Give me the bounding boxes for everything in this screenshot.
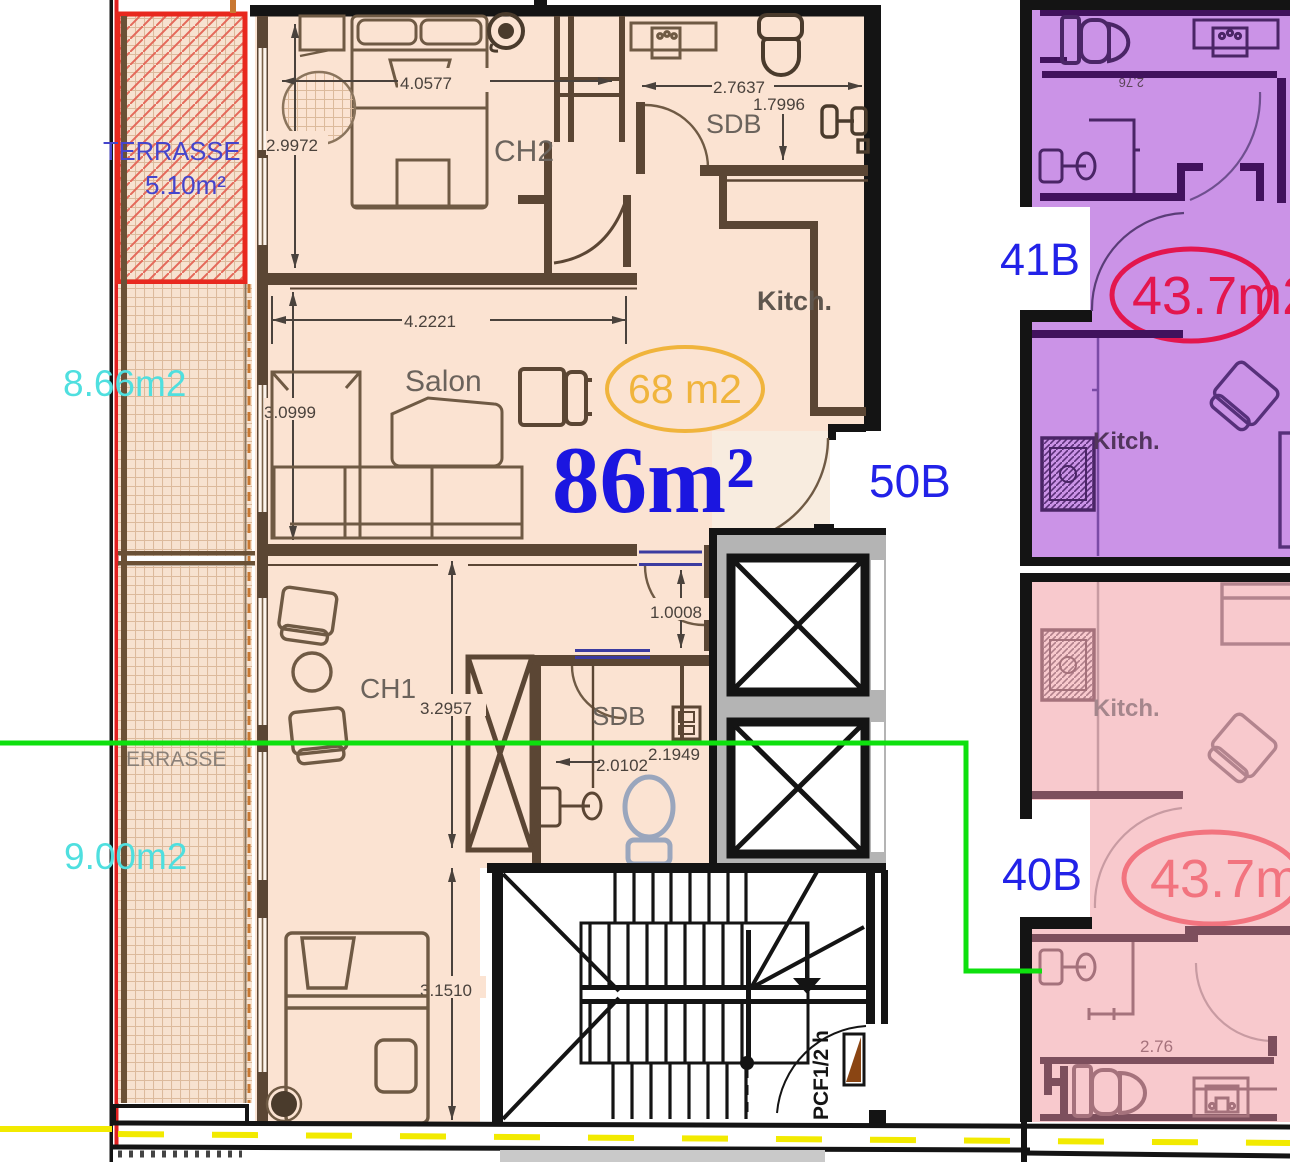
svg-text:CH2: CH2 <box>494 135 554 168</box>
svg-text:5.10m²: 5.10m² <box>145 170 226 200</box>
svg-text:2.9972: 2.9972 <box>266 136 318 155</box>
svg-text:3.2957: 3.2957 <box>420 699 472 718</box>
svg-text:2.1949: 2.1949 <box>648 745 700 764</box>
svg-text:PCF1/2 h: PCF1/2 h <box>810 1030 833 1120</box>
svg-text:4.2221: 4.2221 <box>404 312 456 331</box>
svg-text:86m²: 86m² <box>552 427 755 533</box>
svg-text:40B: 40B <box>1002 849 1082 900</box>
svg-text:Kitch.: Kitch. <box>757 286 832 316</box>
svg-text:43.7m2: 43.7m2 <box>1132 266 1290 326</box>
svg-text:43.7m2: 43.7m2 <box>1150 849 1290 909</box>
svg-text:Kitch.: Kitch. <box>1093 695 1160 722</box>
svg-text:68 m2: 68 m2 <box>628 366 742 412</box>
svg-text:TERRASSE: TERRASSE <box>103 138 240 166</box>
svg-text:ERRASSE: ERRASSE <box>126 748 226 771</box>
svg-text:2.76: 2.76 <box>1119 75 1144 90</box>
svg-text:50B: 50B <box>869 455 951 507</box>
svg-text:Kitch.: Kitch. <box>1093 428 1160 455</box>
svg-text:9.00m2: 9.00m2 <box>64 836 187 877</box>
svg-text:2.76: 2.76 <box>1140 1037 1173 1056</box>
svg-text:CH1: CH1 <box>360 673 416 704</box>
svg-text:8.66m2: 8.66m2 <box>63 363 186 404</box>
svg-text:SDB: SDB <box>592 701 645 731</box>
svg-text:41B: 41B <box>1000 234 1080 285</box>
svg-text:1.7996: 1.7996 <box>753 95 805 114</box>
svg-text:2.0102: 2.0102 <box>596 756 648 775</box>
svg-text:1.0008: 1.0008 <box>650 603 702 622</box>
svg-text:Salon: Salon <box>405 365 482 398</box>
svg-text:4.0577: 4.0577 <box>400 74 452 93</box>
